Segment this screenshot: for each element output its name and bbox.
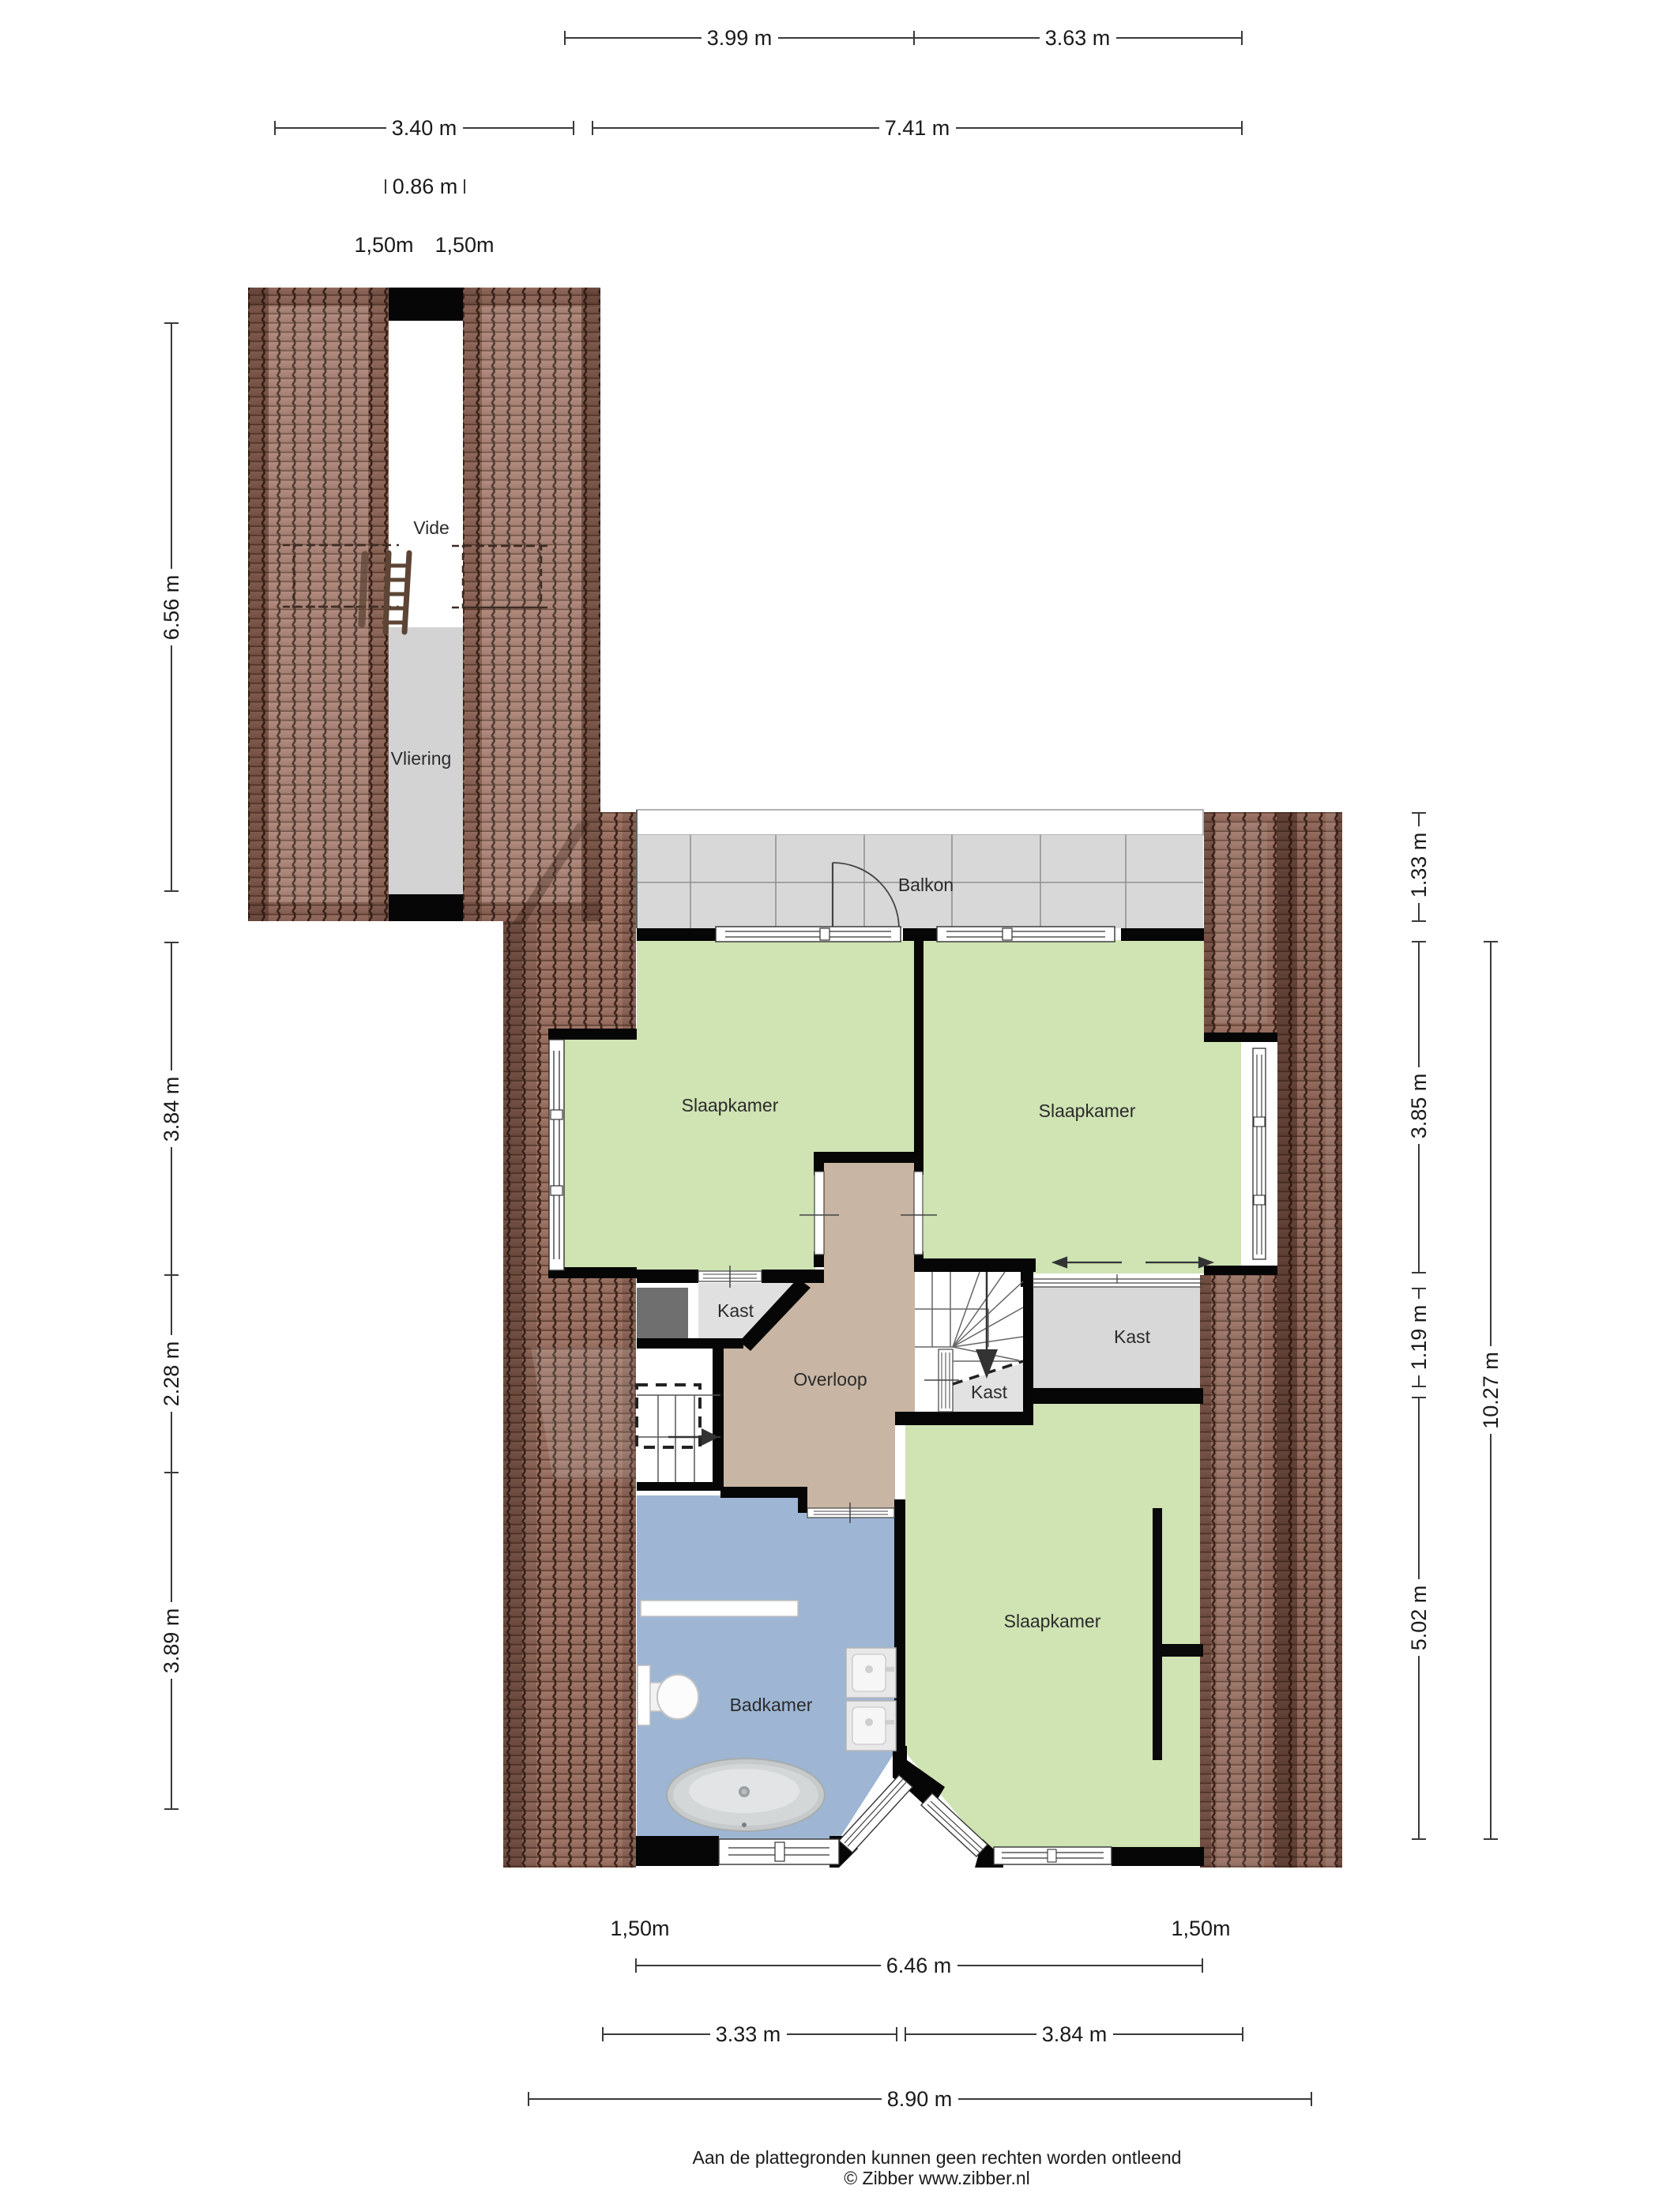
svg-text:2.28 m: 2.28 m (160, 1341, 183, 1407)
svg-text:Badkamer: Badkamer (730, 1695, 813, 1715)
svg-text:3.89 m: 3.89 m (160, 1608, 183, 1674)
svg-text:1.19 m: 1.19 m (1407, 1305, 1431, 1371)
svg-text:Slaapkamer: Slaapkamer (682, 1095, 779, 1115)
svg-text:5.02 m: 5.02 m (1407, 1586, 1431, 1651)
svg-text:Slaapkamer: Slaapkamer (1039, 1100, 1136, 1121)
svg-text:1,50m: 1,50m (354, 233, 413, 257)
svg-text:3.40 m: 3.40 m (392, 116, 457, 140)
svg-text:0.86 m: 0.86 m (393, 175, 458, 198)
svg-text:3.99 m: 3.99 m (707, 26, 773, 50)
svg-text:Vide: Vide (413, 517, 450, 538)
svg-text:6.56 m: 6.56 m (160, 575, 183, 641)
svg-text:1.33 m: 1.33 m (1407, 833, 1431, 898)
svg-text:7.41 m: 7.41 m (885, 116, 950, 140)
svg-text:Overloop: Overloop (793, 1369, 867, 1390)
svg-text:© Zibber www.zibber.nl: © Zibber www.zibber.nl (844, 2168, 1030, 2188)
svg-text:Kast: Kast (717, 1300, 754, 1321)
svg-text:3.84 m: 3.84 m (160, 1077, 183, 1142)
svg-text:3.84 m: 3.84 m (1042, 2022, 1108, 2046)
svg-text:3.63 m: 3.63 m (1045, 26, 1111, 50)
svg-text:3.33 m: 3.33 m (716, 2022, 781, 2046)
svg-text:10.27 m: 10.27 m (1479, 1352, 1503, 1429)
svg-text:1,50m: 1,50m (1171, 1917, 1230, 1940)
svg-text:Kast: Kast (1114, 1326, 1151, 1347)
svg-text:1,50m: 1,50m (434, 233, 494, 257)
svg-text:8.90 m: 8.90 m (887, 2087, 953, 2111)
svg-text:Balkon: Balkon (898, 875, 954, 895)
svg-text:Kast: Kast (971, 1382, 1008, 1402)
svg-text:Aan de plattegronden kunnen ge: Aan de plattegronden kunnen geen rechten… (693, 2147, 1182, 2168)
svg-text:Slaapkamer: Slaapkamer (1004, 1611, 1101, 1631)
svg-text:6.46 m: 6.46 m (886, 1954, 952, 1977)
svg-text:3.85 m: 3.85 m (1407, 1074, 1431, 1139)
svg-text:Vliering: Vliering (391, 748, 452, 769)
svg-text:1,50m: 1,50m (610, 1917, 669, 1940)
